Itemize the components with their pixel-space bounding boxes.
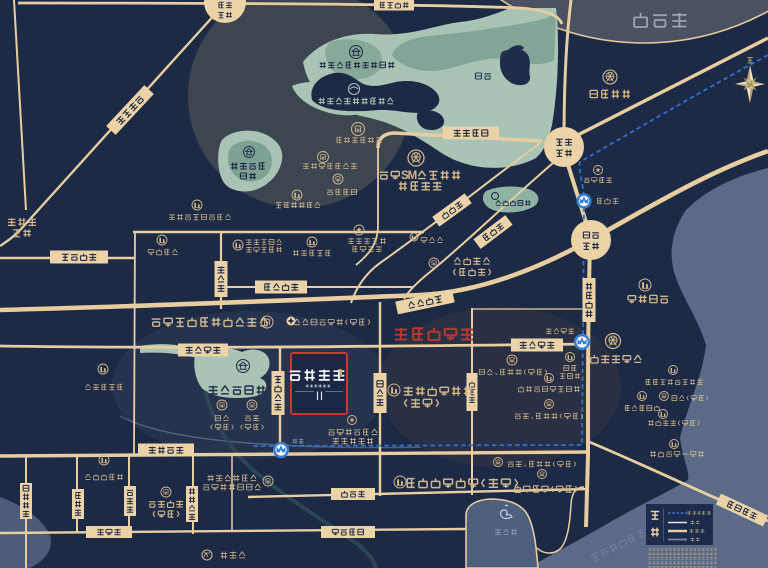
svg-text:4: 4: [697, 511, 700, 517]
svg-text:M: M: [408, 170, 418, 182]
